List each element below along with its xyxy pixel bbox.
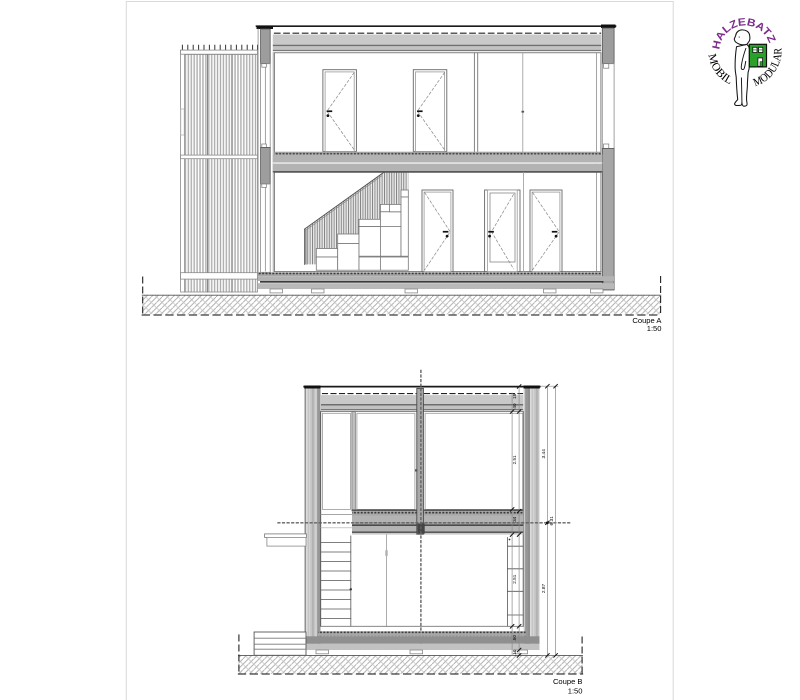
svg-text:.10: .10 xyxy=(512,649,517,656)
svg-text:Coupe B: Coupe B xyxy=(553,677,583,686)
svg-text:1:50: 1:50 xyxy=(647,324,662,333)
svg-text:2.87: 2.87 xyxy=(541,584,547,594)
svg-text:2.51: 2.51 xyxy=(512,574,517,583)
svg-text:40: 40 xyxy=(512,403,517,409)
svg-text:6.31: 6.31 xyxy=(549,516,555,526)
svg-text:.34: .34 xyxy=(512,516,517,523)
svg-text:2.51: 2.51 xyxy=(512,455,517,464)
svg-text:3.44: 3.44 xyxy=(541,449,547,459)
svg-text:.50: .50 xyxy=(512,635,517,642)
svg-text:1:50: 1:50 xyxy=(568,687,583,696)
svg-text:18: 18 xyxy=(512,393,517,399)
